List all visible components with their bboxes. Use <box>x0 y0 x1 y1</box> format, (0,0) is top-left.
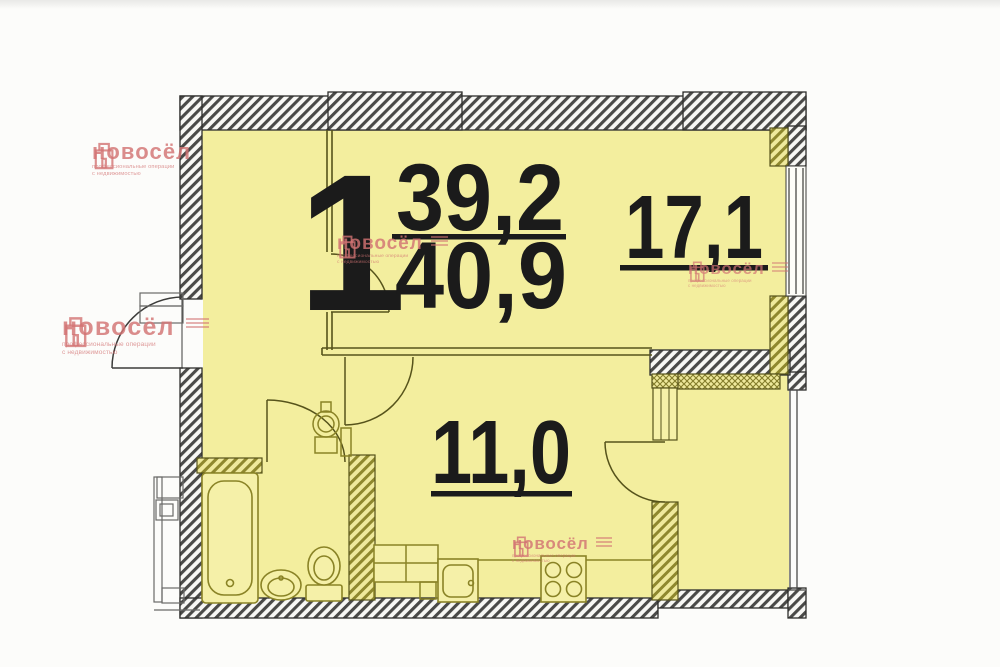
kitchen-area-label: 11,0 <box>431 403 571 503</box>
floor-plan-canvas: 1 39,2 40,9 17,1 11,0 <box>0 0 1000 667</box>
living-room-area-label: 17,1 <box>625 178 763 278</box>
toilet <box>306 547 342 601</box>
entrance-door <box>112 297 183 368</box>
washbasin <box>261 570 301 600</box>
overall-area-label: 40,9 <box>395 223 567 329</box>
rooms-count-label: 1 <box>298 134 406 352</box>
kitchen-sink <box>438 559 478 602</box>
stove <box>541 556 586 602</box>
window-living-room <box>786 166 806 296</box>
balcony-glazing <box>788 390 805 590</box>
window-kitchen-balcony <box>653 388 677 440</box>
bathtub <box>202 473 258 603</box>
floorplan-screenshot: 1 39,2 40,9 17,1 11,0 новосёл профессион… <box>0 0 1000 667</box>
